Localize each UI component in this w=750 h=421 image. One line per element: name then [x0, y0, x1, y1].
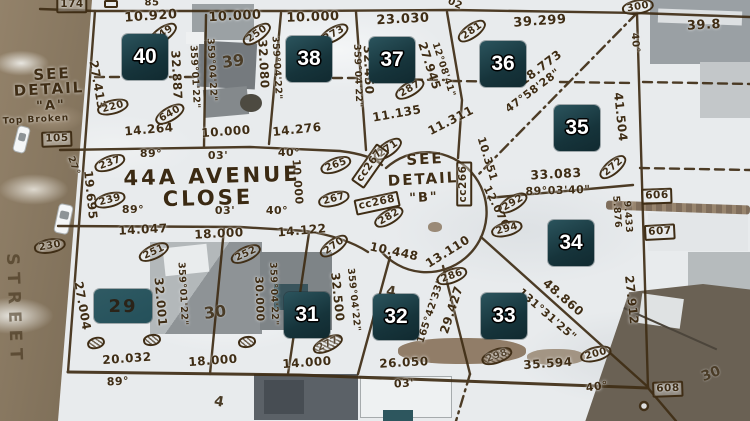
lot-badge-31: 31	[284, 292, 330, 338]
dimension-label: 27°	[65, 155, 81, 177]
monument-circled: 272	[596, 151, 630, 183]
dimension-label: 10.000	[208, 8, 262, 25]
dimension-label: 40°	[278, 147, 300, 159]
dimension-label: 11.135	[372, 103, 423, 125]
monument-circled: 251	[136, 238, 172, 265]
dimension-label: 18.000	[194, 226, 244, 242]
monument-circled: 300	[621, 0, 655, 17]
dimension-label: 359°01'22"	[175, 262, 189, 326]
monument-circled: 298	[479, 343, 515, 368]
lot-badge-36: 36	[480, 41, 526, 87]
dimension-label: 03'	[394, 377, 415, 390]
monument-circled: 200	[578, 343, 613, 366]
badge-number: 40	[133, 45, 156, 69]
dimension-label: 40°	[629, 32, 642, 53]
lot-badge-32: 32	[373, 294, 419, 340]
lot-badge-40: 40	[122, 34, 168, 80]
monument-circled: 294	[489, 218, 524, 241]
badge-number: 37	[380, 48, 403, 72]
badge-number: 36	[491, 52, 514, 76]
monument-circled: 252	[228, 240, 264, 267]
lot-badge-35: 35	[554, 105, 600, 151]
dimension-label: 359°01'22"	[187, 45, 201, 109]
dimension-label: 14.122	[277, 222, 327, 239]
monument-boxed: 606	[641, 188, 673, 205]
see-detail-b-line3: "B"	[409, 190, 439, 207]
dimension-label: 165°42'33"	[415, 277, 446, 344]
dimension-label: 85	[145, 0, 160, 9]
dimension-label: 359°04'22"	[204, 38, 218, 102]
lot-badge-29: 29	[94, 289, 152, 323]
dimension-label: 14.000	[282, 355, 332, 372]
dimension-label: 10.448	[369, 240, 420, 263]
dimension-label: 41.504	[611, 92, 629, 142]
dimension-label: 19.695	[81, 170, 99, 220]
dimension-label: 89°03'40"	[525, 184, 590, 198]
dimension-label: 89°	[140, 148, 162, 160]
dimension-label: 27.912	[622, 275, 640, 325]
dimension-label: 9.433	[621, 200, 634, 233]
dimension-label: 18.000	[188, 353, 238, 370]
dimension-label: 26.050	[379, 355, 429, 371]
ground-lot-number: 39	[221, 50, 246, 72]
dimension-label: 10.351	[475, 135, 500, 182]
dimension-label: 02	[446, 0, 464, 12]
dimension-label: 30.000	[252, 276, 266, 322]
monument-boxed: 174	[56, 0, 87, 13]
dimension-label: 20.032	[102, 351, 152, 368]
ground-lot-number: 4	[213, 393, 225, 410]
ground-lot-number: 30	[699, 363, 723, 385]
dimension-label: 03'	[208, 150, 228, 162]
monument-circled: 292	[495, 188, 531, 217]
see-detail-b-line2: DETAIL	[387, 168, 458, 190]
ground-lot-number: 30	[203, 301, 228, 323]
dimension-label: 40°	[266, 205, 288, 217]
dimension-label: 89°	[107, 375, 130, 388]
dimension-label: 14.047	[118, 222, 168, 238]
lot-badge-37: 37	[369, 37, 415, 83]
dimension-label: 11.311	[426, 104, 476, 138]
dimension-label: 10.000	[201, 124, 251, 141]
plat-labels: 8510.92010.00010.00023.0300239.29939.840…	[0, 0, 750, 421]
monument-boxed: 607	[644, 223, 676, 240]
badge-number: 31	[295, 303, 318, 327]
dimension-label: 32.887	[168, 50, 184, 100]
badge-number: 29	[108, 296, 137, 317]
dimension-label: 14.276	[272, 121, 322, 139]
dimension-label: 32.001	[151, 277, 168, 327]
dimension-label: 14.264	[124, 121, 174, 138]
lot-badge-34: 34	[548, 220, 594, 266]
dimension-label: 40°	[585, 379, 609, 394]
dimension-label: 32.500	[328, 272, 346, 322]
lot-badge-38: 38	[286, 36, 332, 82]
monument-circled: 230	[33, 236, 67, 256]
dimension-label: 39.299	[513, 13, 567, 31]
street-vertical-label: STREET	[2, 253, 26, 367]
dimension-label: 359°04'22"	[344, 268, 361, 333]
dimension-label: 359°04'22"	[267, 262, 280, 326]
monument-circled: 267	[316, 188, 351, 211]
see-detail-a-line2: DETAIL	[13, 78, 84, 100]
dimension-label: 359°04'22"	[269, 36, 283, 100]
badge-number: 35	[565, 116, 588, 140]
monument-circled	[86, 335, 106, 351]
see-detail-b-line1: SEE	[406, 149, 444, 169]
monument-boxed: 608	[652, 381, 684, 398]
dimension-label: 10.000	[286, 10, 340, 26]
badge-number: 32	[384, 305, 407, 329]
street-name-line2: CLOSE	[163, 185, 254, 211]
monument-circled	[142, 333, 162, 348]
badge-number: 34	[559, 231, 582, 255]
dimension-label: 13.110	[424, 233, 473, 270]
dimension-label: 39.8	[687, 18, 722, 34]
badge-number: 38	[297, 47, 320, 71]
dimension-label: 33.083	[530, 166, 582, 182]
monument-circled: 265	[318, 152, 354, 177]
aerial-plat-map: 8510.92010.00010.00023.0300239.29939.840…	[0, 0, 750, 421]
monument-boxed: cc267	[351, 143, 389, 189]
monument-boxed: 105	[41, 131, 73, 148]
dimension-label: 32.080	[255, 39, 271, 89]
lot-badge-33: 33	[481, 293, 527, 339]
dimension-label: 35.594	[523, 356, 573, 373]
dimension-label: 23.030	[376, 11, 430, 28]
badge-number: 33	[492, 304, 515, 328]
monument-circled	[237, 335, 257, 350]
dimension-label: 89°	[122, 204, 144, 216]
see-detail-a-line3: "A"	[36, 98, 66, 115]
dimension-label: 27.004	[71, 281, 93, 332]
monument-boxed	[104, 0, 118, 8]
